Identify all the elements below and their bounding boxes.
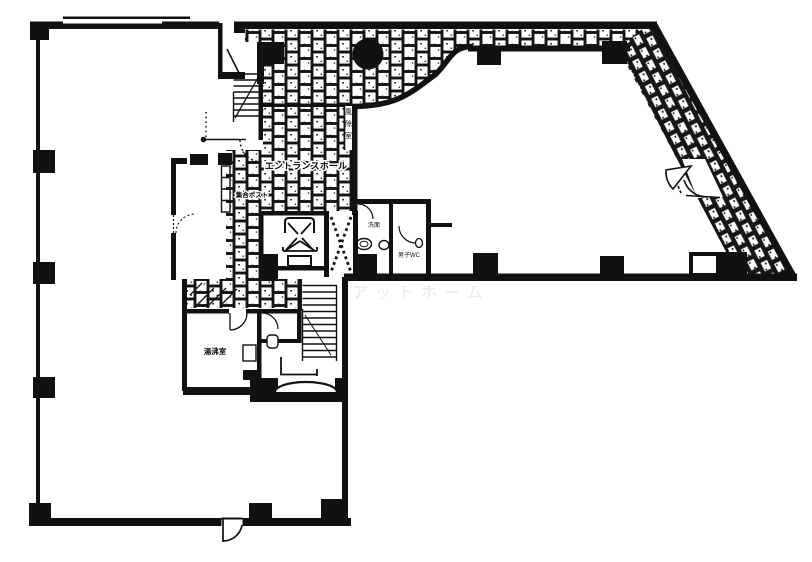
svg-text:室: 室 — [345, 131, 352, 140]
svg-text:集合ポスト: 集合ポスト — [235, 190, 269, 199]
svg-text:風: 風 — [345, 108, 352, 116]
svg-text:湯沸室: 湯沸室 — [204, 346, 227, 356]
svg-text:アットホーム: アットホーム — [352, 285, 490, 302]
svg-text:除: 除 — [345, 119, 352, 128]
svg-text:洗面: 洗面 — [368, 221, 380, 229]
svg-text:エントランスホール: エントランスホール — [265, 161, 348, 171]
svg-text:男子WC: 男子WC — [398, 252, 421, 259]
